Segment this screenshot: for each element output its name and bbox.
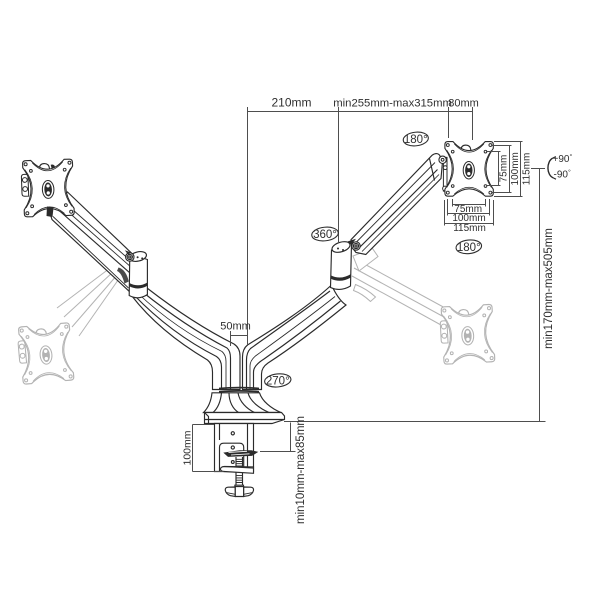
svg-text:180°: 180° — [457, 242, 481, 254]
svg-text:115mm: 115mm — [453, 223, 486, 234]
svg-text:100mm: 100mm — [182, 430, 194, 465]
svg-text:min10mm-max85mm: min10mm-max85mm — [295, 416, 307, 524]
svg-text:115mm: 115mm — [522, 153, 533, 186]
svg-text:75mm: 75mm — [498, 155, 509, 183]
svg-text:180°: 180° — [404, 134, 428, 146]
svg-text:270°: 270° — [266, 375, 290, 387]
svg-text:min170mm-max505mm: min170mm-max505mm — [543, 228, 555, 349]
svg-text:50mm: 50mm — [220, 321, 251, 333]
svg-text:360°: 360° — [313, 229, 337, 241]
svg-text:210mm: 210mm — [271, 96, 311, 110]
svg-text:80mm: 80mm — [448, 98, 479, 110]
svg-text:100mm: 100mm — [510, 152, 521, 185]
svg-text:min255mm-max315mm: min255mm-max315mm — [333, 98, 452, 110]
